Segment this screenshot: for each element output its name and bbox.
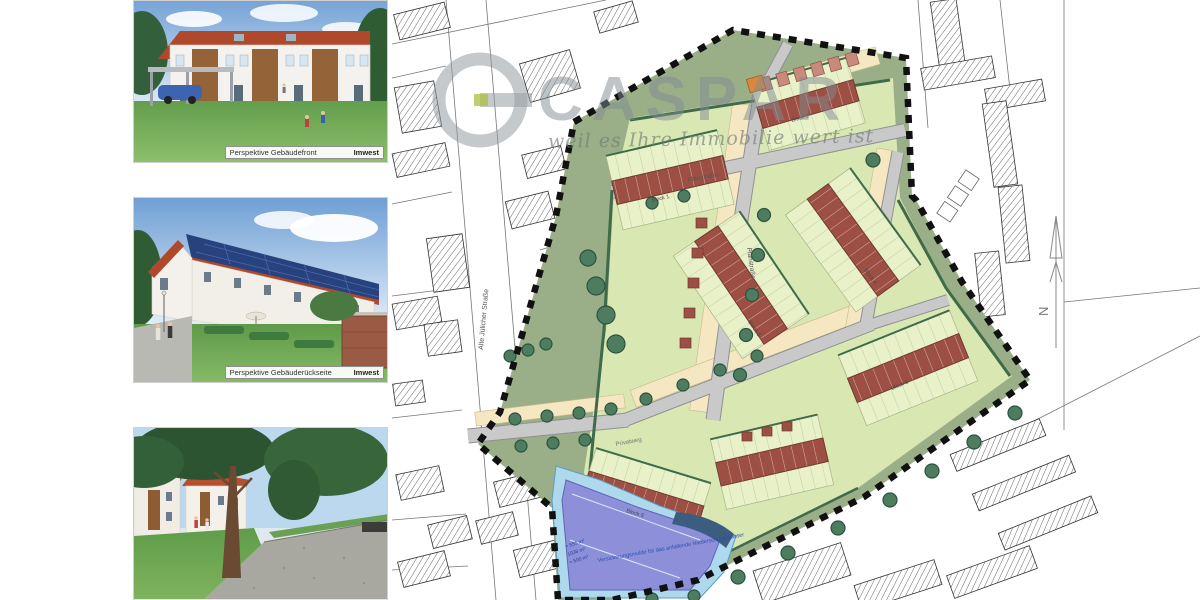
tree-icon bbox=[677, 379, 689, 391]
garage bbox=[742, 432, 752, 441]
tree-icon bbox=[540, 338, 552, 350]
site-plan: Versickerungsmulde für das anfallende Ni… bbox=[0, 0, 1200, 600]
garage bbox=[937, 201, 958, 222]
tree-icon bbox=[866, 153, 880, 167]
garage bbox=[692, 248, 703, 258]
garage bbox=[958, 170, 979, 191]
tree-icon bbox=[640, 393, 652, 405]
tree-icon bbox=[597, 306, 615, 324]
tree-icon bbox=[781, 546, 795, 560]
tree-icon bbox=[605, 403, 617, 415]
tree-icon bbox=[734, 369, 747, 382]
garage bbox=[762, 427, 772, 436]
tree-icon bbox=[509, 413, 521, 425]
existing-building bbox=[753, 543, 851, 600]
existing-building bbox=[392, 143, 450, 178]
existing-building bbox=[476, 512, 519, 544]
existing-building bbox=[428, 516, 473, 549]
tree-icon bbox=[579, 434, 591, 446]
existing-building bbox=[982, 101, 1017, 188]
tree-icon bbox=[515, 440, 527, 452]
existing-building bbox=[947, 546, 1038, 599]
existing-building bbox=[426, 234, 469, 292]
tree-icon bbox=[607, 335, 625, 353]
street-label: Alte Jülicher Straße bbox=[478, 289, 490, 351]
existing-building bbox=[505, 191, 554, 229]
existing-building bbox=[393, 380, 426, 406]
tree-icon bbox=[740, 329, 753, 342]
tree-icon bbox=[714, 364, 726, 376]
existing-building bbox=[394, 81, 441, 133]
existing-building bbox=[594, 1, 639, 33]
tree-icon bbox=[967, 435, 981, 449]
north-arrow-icon: N bbox=[1036, 216, 1062, 348]
garage bbox=[688, 278, 699, 288]
existing-building bbox=[519, 50, 580, 103]
existing-building bbox=[522, 146, 567, 179]
tree-icon bbox=[731, 570, 745, 584]
tree-icon bbox=[883, 493, 897, 507]
existing-building bbox=[396, 466, 444, 501]
garage bbox=[680, 338, 691, 348]
existing-building bbox=[398, 551, 451, 588]
tree-icon bbox=[587, 277, 605, 295]
garage bbox=[947, 186, 968, 207]
tree-icon bbox=[751, 350, 763, 362]
north-label: N bbox=[1036, 307, 1051, 316]
existing-building bbox=[854, 560, 942, 600]
tree-icon bbox=[522, 344, 534, 356]
tree-icon bbox=[758, 209, 771, 222]
existing-building bbox=[950, 419, 1046, 472]
tree-icon bbox=[925, 464, 939, 478]
tree-icon bbox=[678, 190, 690, 202]
garage bbox=[782, 422, 792, 431]
existing-building bbox=[394, 2, 451, 40]
tree-icon bbox=[1008, 406, 1022, 420]
existing-building bbox=[424, 320, 462, 356]
garage bbox=[696, 218, 707, 228]
tree-icon bbox=[573, 407, 585, 419]
garage bbox=[684, 308, 695, 318]
tree-icon bbox=[688, 590, 700, 600]
existing-building bbox=[998, 496, 1097, 550]
exposé-page: Versickerungsmulde für das anfallende Ni… bbox=[0, 0, 1200, 600]
existing-building bbox=[998, 185, 1030, 263]
tree-icon bbox=[746, 289, 759, 302]
tree-icon bbox=[580, 250, 596, 266]
existing-building bbox=[972, 455, 1075, 511]
tree-icon bbox=[541, 410, 553, 422]
tree-icon bbox=[831, 521, 845, 535]
tree-icon bbox=[547, 437, 559, 449]
